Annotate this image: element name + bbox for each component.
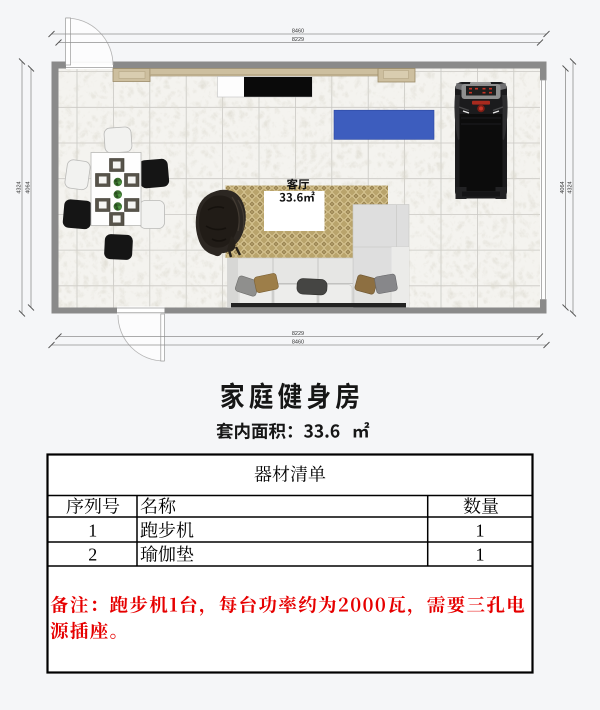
svg-text:8460: 8460 (292, 29, 304, 35)
svg-text:4324: 4324 (17, 181, 23, 193)
svg-text:8229: 8229 (292, 37, 304, 43)
svg-text:1: 1 (88, 521, 97, 541)
svg-text:8229: 8229 (292, 331, 304, 337)
svg-text:1: 1 (476, 521, 485, 541)
svg-text:8460: 8460 (292, 340, 304, 346)
svg-text:4324: 4324 (568, 181, 574, 193)
svg-text:4064: 4064 (560, 181, 566, 193)
svg-text:2: 2 (88, 545, 97, 565)
svg-text:1: 1 (476, 545, 485, 565)
svg-text:4064: 4064 (26, 181, 32, 193)
